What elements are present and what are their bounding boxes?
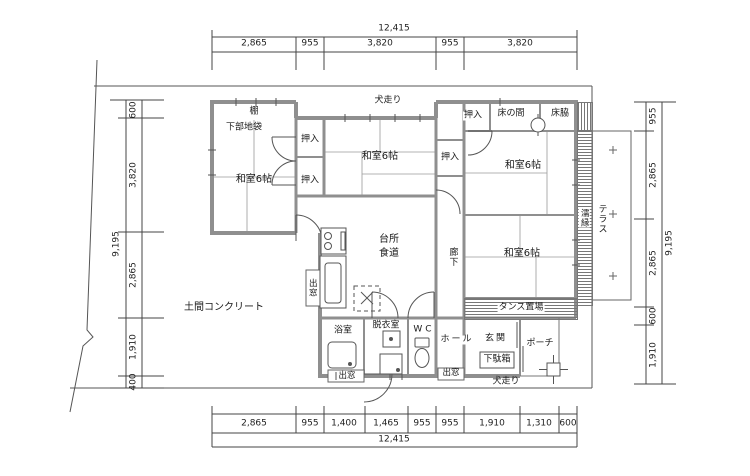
closet-c-label: 押入 <box>440 154 460 163</box>
kitchen-counter-icon <box>320 228 346 308</box>
dim-right-seg-4: 600 <box>650 307 659 324</box>
porch-post-icon <box>539 355 568 384</box>
dim-left-seg-1: 600 <box>130 101 139 118</box>
hall-label: ホール <box>439 336 474 345</box>
tatami-lines <box>212 120 576 298</box>
dim-bottom-seg-1: 2,865 <box>241 420 267 429</box>
dim-left-seg-2: 3,820 <box>130 162 139 188</box>
tokowaki-label: 床脇 <box>550 110 570 119</box>
dim-bottom-seg-2: 955 <box>301 420 318 429</box>
dim-left-seg-4: 1,910 <box>130 334 139 360</box>
bay-window-kitchen-label: 出窓 <box>307 279 318 298</box>
dim-bottom-seg-4: 1,465 <box>373 420 399 429</box>
bath-label: 浴室 <box>333 327 353 336</box>
corridor-label: 廊下 <box>447 247 458 267</box>
kitchen-label-line1: 台所 <box>379 235 399 245</box>
washitsu-ne-label: 和室6帖 <box>505 161 541 171</box>
washing-machine-icon <box>380 354 402 374</box>
floor-plan-page: 12,415 2,865 955 3,820 955 3,820 2,865 9… <box>0 0 750 476</box>
dim-top-seg-2: 955 <box>301 40 318 49</box>
shelf-label: 棚 <box>249 108 258 117</box>
dim-left-total: 9,195 <box>113 231 122 257</box>
closet-w-label: 押入 <box>300 177 320 186</box>
dim-right-total: 9,195 <box>666 230 675 256</box>
closet-ne-label: 押入 <box>463 112 483 121</box>
dim-bottom-seg-7: 1,910 <box>479 420 505 429</box>
doma-concrete-label: 土間コンクリート <box>184 303 264 313</box>
washitsu-nw-label: 和室6帖 <box>236 175 272 185</box>
dim-top-total: 12,415 <box>378 25 410 34</box>
dressing-room-label: 脱衣室 <box>371 322 400 331</box>
porch-label: ポーチ <box>526 340 553 349</box>
dim-bottom-seg-9: 600 <box>559 420 576 429</box>
dim-right-seg-5: 1,910 <box>650 342 659 368</box>
shoe-cabinet-label: 下駄箱 <box>483 356 510 365</box>
kitchen-label-line2: 食道 <box>379 249 399 259</box>
tokonoma-label: 床の間 <box>496 110 525 119</box>
tansu-storage-label: タンス置場 <box>498 304 545 313</box>
wc-label: WC <box>413 326 434 335</box>
washbasin-icon <box>383 331 400 347</box>
washitsu-e-label: 和室6帖 <box>504 249 540 259</box>
bathtub-icon <box>328 342 356 368</box>
entrance-label: 玄関 <box>485 335 507 344</box>
dim-bottom-seg-6: 955 <box>441 420 458 429</box>
dim-right-seg-1: 955 <box>650 107 659 124</box>
dim-right-seg-3: 2,865 <box>650 250 659 276</box>
dim-bottom-seg-3: 1,400 <box>331 420 357 429</box>
veranda-top-hatch <box>577 102 593 132</box>
dim-top-seg-1: 2,865 <box>241 40 267 49</box>
dim-bottom-seg-8: 1,310 <box>526 420 552 429</box>
nureen-label: 濡縁 <box>579 209 590 228</box>
dim-right-seg-2: 2,865 <box>650 162 659 188</box>
dim-top-seg-4: 955 <box>441 40 458 49</box>
terrace-label: テラス <box>597 204 606 234</box>
dim-top-seg-3: 3,820 <box>367 40 393 49</box>
washitsu-n-label: 和室6帖 <box>362 152 398 162</box>
floor-hatch-icon <box>354 286 380 311</box>
bay-window-bath-label: 出窓 <box>337 372 356 381</box>
bay-window-hall-label: 出窓 <box>441 369 460 378</box>
toilet-icon <box>415 338 429 368</box>
dimension-lines-top <box>212 30 577 70</box>
dim-bottom-total: 12,415 <box>378 436 410 445</box>
dim-left-seg-5: 400 <box>130 373 139 390</box>
dim-top-seg-5: 3,820 <box>507 40 533 49</box>
closet-nw-label: 押入 <box>300 136 320 145</box>
tokonoma-post-icon <box>531 114 545 136</box>
dim-left-seg-3: 2,865 <box>130 262 139 288</box>
inubashiri-top-label: 犬走り <box>374 97 401 106</box>
under-cabinet-label: 下部地袋 <box>226 124 262 133</box>
dim-bottom-seg-5: 955 <box>413 420 430 429</box>
inubashiri-bottom-label: 犬走り <box>492 378 519 387</box>
